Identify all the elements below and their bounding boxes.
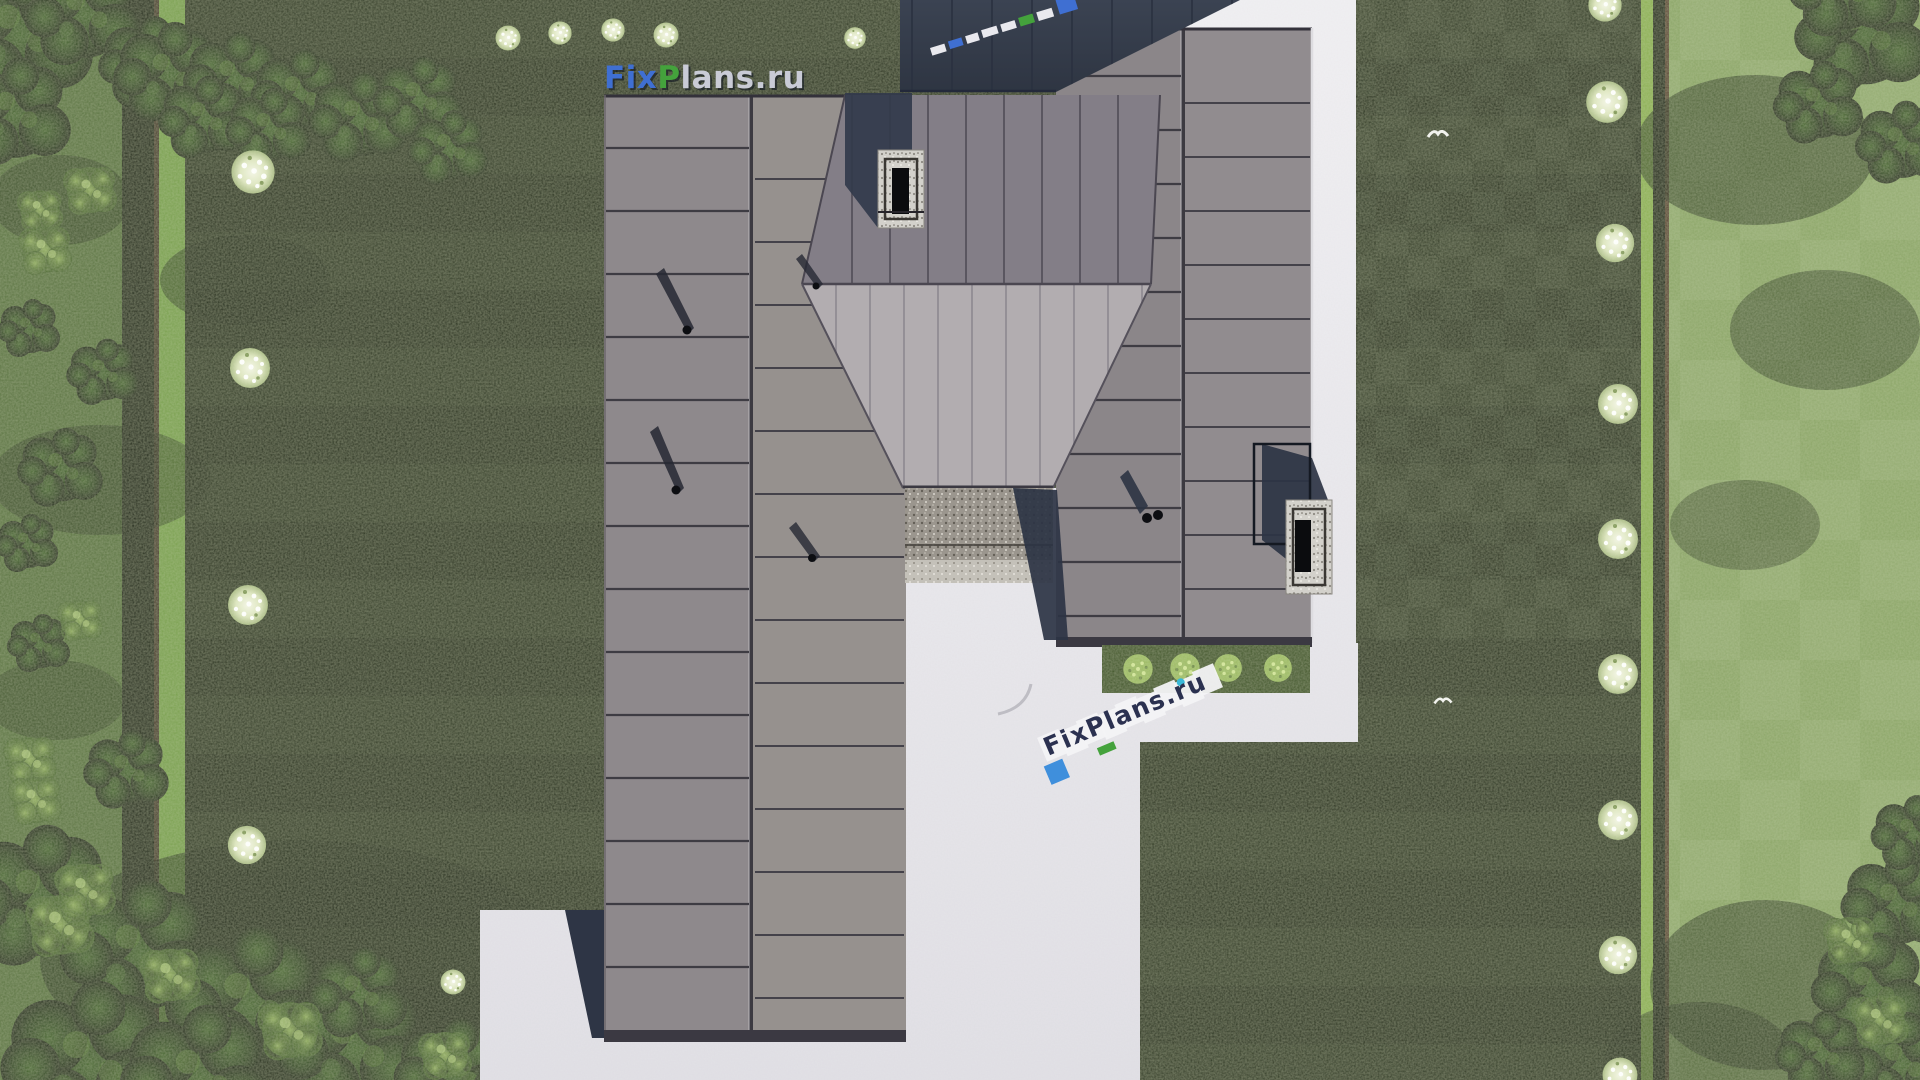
- chimney-2: [1286, 500, 1332, 594]
- left-wing-eave: [604, 1030, 906, 1042]
- chimney-2-flue: [1295, 520, 1311, 572]
- watermark-p: P: [657, 60, 680, 96]
- bed-bush: [1123, 654, 1152, 683]
- watermark-rest: lans.ru: [681, 60, 806, 96]
- chimney-1: [878, 150, 924, 228]
- bed-bush: [1264, 654, 1292, 682]
- aerial-site-render: FixPlans.ru FixPlans.ru: [0, 0, 1920, 1080]
- chimney-1-flue: [892, 168, 909, 214]
- left-wing-west-slope: [604, 95, 752, 1040]
- site-plan-canvas: FixPlans.ru FixPlans.ru: [0, 0, 1920, 1080]
- watermark-top-left: FixPlans.ru: [604, 60, 805, 96]
- watermark-fix: Fix: [604, 60, 657, 96]
